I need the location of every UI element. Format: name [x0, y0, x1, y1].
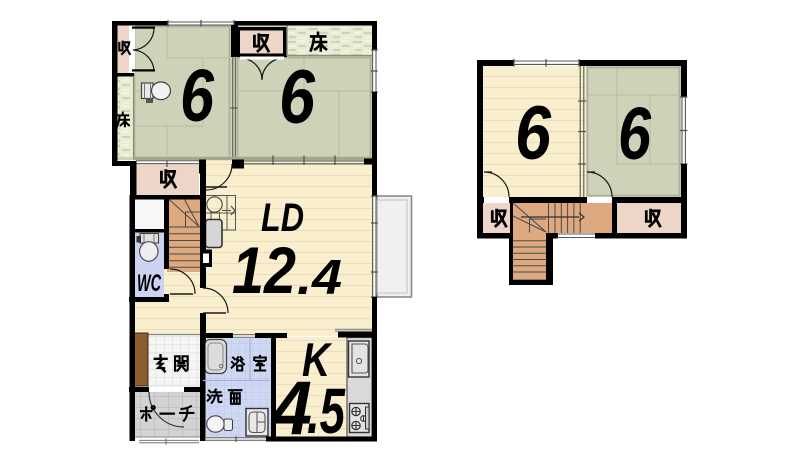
svg-text:6: 6: [279, 55, 316, 140]
svg-text:6: 6: [180, 54, 215, 137]
svg-text:6: 6: [618, 92, 652, 175]
svg-text:6: 6: [515, 91, 552, 176]
svg-text:4: 4: [270, 366, 312, 451]
svg-text:.5: .5: [307, 375, 346, 447]
svg-text:12: 12: [232, 233, 296, 307]
svg-text:.4: .4: [297, 251, 342, 305]
svg-text:WC: WC: [137, 270, 161, 297]
